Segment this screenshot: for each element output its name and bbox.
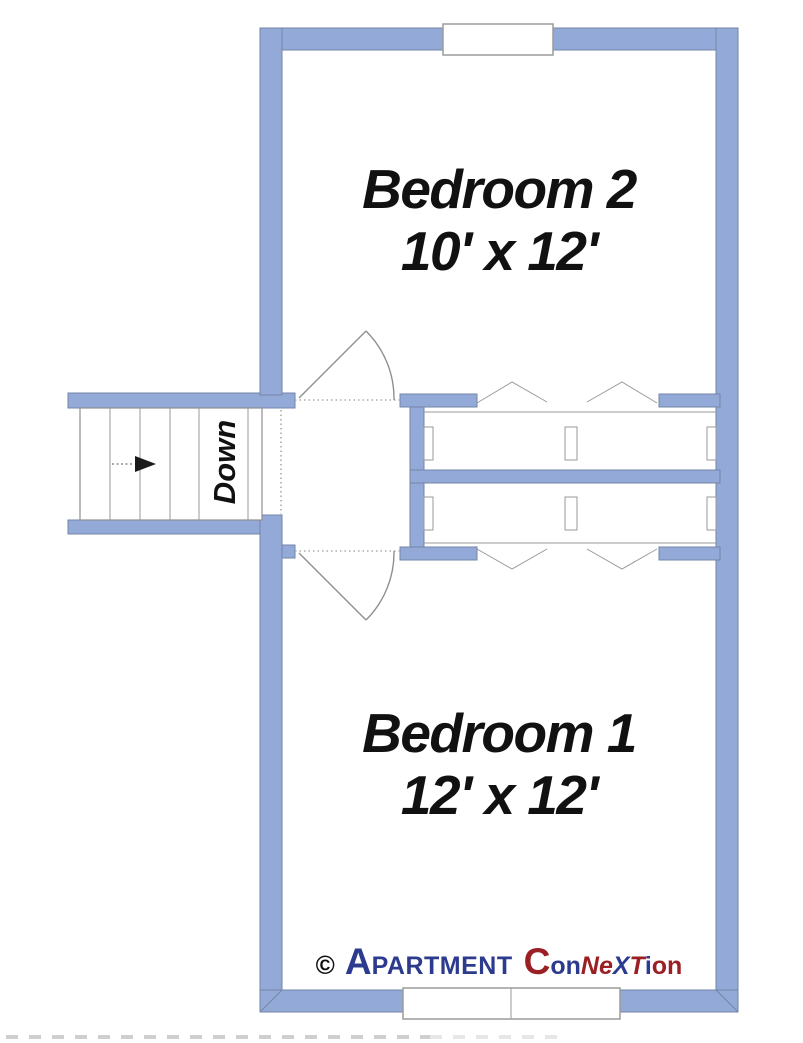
floor-plan-drawing xyxy=(0,0,803,1043)
closet-wall-stub-top-left xyxy=(400,394,477,407)
closet-shelf-support xyxy=(424,497,433,530)
bedroom1-label: Bedroom 1 12' x 12' xyxy=(263,702,735,826)
logo-letter: i xyxy=(645,952,652,980)
bedroom2-door-swing-arc xyxy=(366,331,394,400)
logo-letter: on xyxy=(652,952,683,980)
closet-shelf-support xyxy=(707,497,716,530)
logo-letter: C xyxy=(524,941,551,982)
closet-bifold-door-chevron xyxy=(477,549,547,569)
closet-shelf-support xyxy=(565,497,577,530)
logo-letter: T xyxy=(630,952,645,980)
logo-letter: PARTMENT xyxy=(372,952,513,980)
closet-shelf-support xyxy=(707,427,716,460)
bedroom2-label: Bedroom 2 10' x 12' xyxy=(263,158,735,282)
closet-bifold-door-chevron xyxy=(477,382,547,403)
closet-wall-stub-bottom-right xyxy=(659,547,720,560)
closet-wall-stub-top-right xyxy=(659,394,720,407)
logo-letter: Ne xyxy=(581,952,613,980)
window-top xyxy=(443,24,553,55)
apartment-connextion-logo: ©APARTMENTConNeXTion xyxy=(263,941,735,987)
closet-wall-stub-bottom-left xyxy=(400,547,477,560)
bedroom1-door-leaf xyxy=(299,553,366,620)
room-dimensions: 12' x 12' xyxy=(263,764,735,826)
logo-letter: on xyxy=(550,952,581,980)
cropped-text-artifact xyxy=(430,1035,568,1039)
floor-plan: Bedroom 2 10' x 12' Bedroom 1 12' x 12' … xyxy=(0,0,803,1043)
closet-bifold-door-chevron xyxy=(587,549,657,569)
logo-letter: X xyxy=(613,952,630,980)
door-jamb-stub-bedroom1 xyxy=(282,545,295,558)
bedroom2-door-leaf xyxy=(299,331,366,398)
room-name: Bedroom 2 xyxy=(263,158,735,220)
stairwell-wall-bottom xyxy=(68,520,262,534)
stairs-down-label: Down xyxy=(203,407,247,517)
room-dimensions: 10' x 12' xyxy=(263,220,735,282)
copyright-icon: © xyxy=(316,950,335,980)
cropped-text-artifact xyxy=(6,1035,430,1039)
closet-partition-wall xyxy=(410,470,720,483)
logo-letter: A xyxy=(345,941,372,982)
room-name: Bedroom 1 xyxy=(263,702,735,764)
closet-shelf-support xyxy=(424,427,433,460)
closet-shelf-support xyxy=(565,427,577,460)
bedroom1-door-swing-arc xyxy=(366,551,394,620)
closet-bifold-door-chevron xyxy=(587,382,657,403)
